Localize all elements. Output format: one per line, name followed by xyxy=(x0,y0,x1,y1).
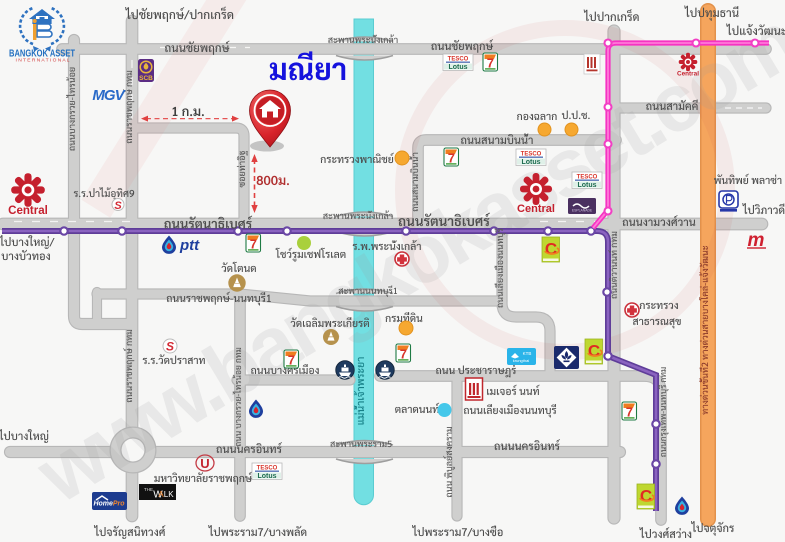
svg-text:I N T E R N A T I O N A L: I N T E R N A T I O N A L xyxy=(16,58,71,63)
svg-text:KTB: KTB xyxy=(523,351,532,356)
svg-text:Lotus: Lotus xyxy=(257,473,276,480)
svg-text:Lotus: Lotus xyxy=(577,182,596,189)
svg-text:Central: Central xyxy=(517,203,555,215)
svg-text:krungthai: krungthai xyxy=(513,358,530,363)
svg-text:U: U xyxy=(200,456,209,471)
svg-text:C: C xyxy=(640,487,652,506)
svg-text:S: S xyxy=(166,340,174,354)
svg-text:C: C xyxy=(545,240,557,259)
svg-text:C: C xyxy=(588,342,600,361)
svg-text:ptt: ptt xyxy=(179,237,200,254)
svg-text:HomePro: HomePro xyxy=(93,501,125,508)
svg-text:Central: Central xyxy=(8,205,48,217)
svg-text:THE: THE xyxy=(144,487,153,492)
svg-text:TESCO: TESCO xyxy=(448,57,469,63)
svg-text:MGV: MGV xyxy=(92,87,126,104)
svg-text:ESPLANADE: ESPLANADE xyxy=(572,209,593,213)
svg-text:S: S xyxy=(114,200,122,212)
svg-text:SCB: SCB xyxy=(139,75,153,82)
svg-text:Central: Central xyxy=(677,70,699,77)
svg-text:ALK: ALK xyxy=(158,490,174,499)
svg-text:Lotus: Lotus xyxy=(521,159,540,166)
svg-text:Lotus: Lotus xyxy=(448,64,467,71)
